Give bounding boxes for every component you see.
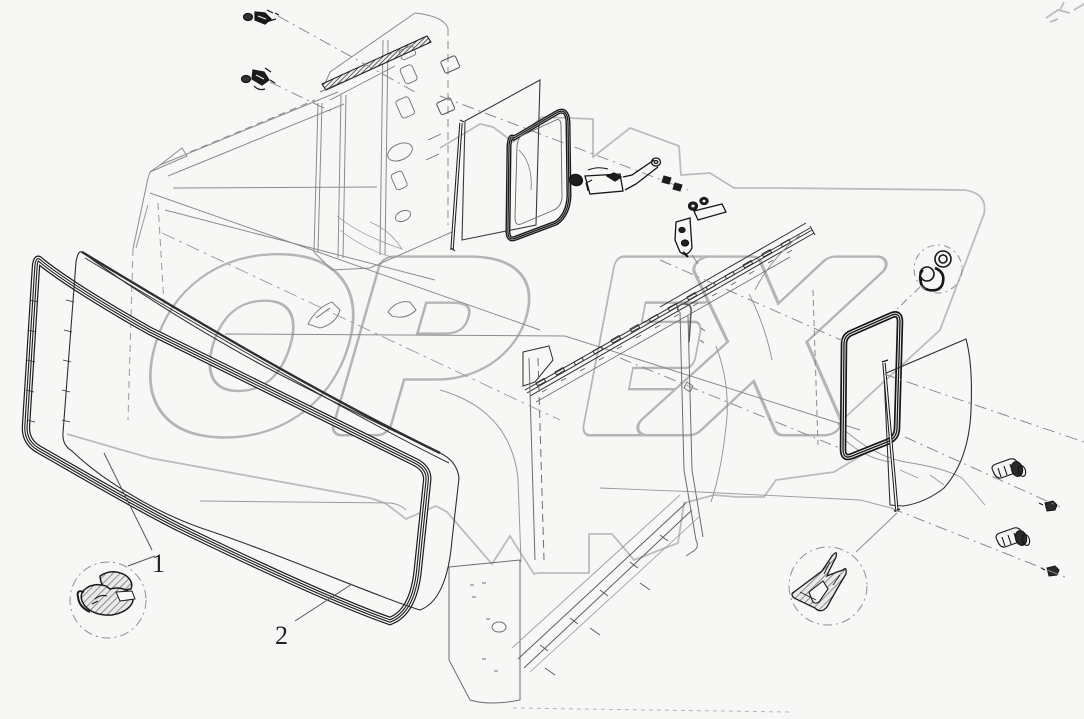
svg-text:2: 2 bbox=[275, 621, 288, 650]
svg-text:1: 1 bbox=[152, 549, 165, 578]
